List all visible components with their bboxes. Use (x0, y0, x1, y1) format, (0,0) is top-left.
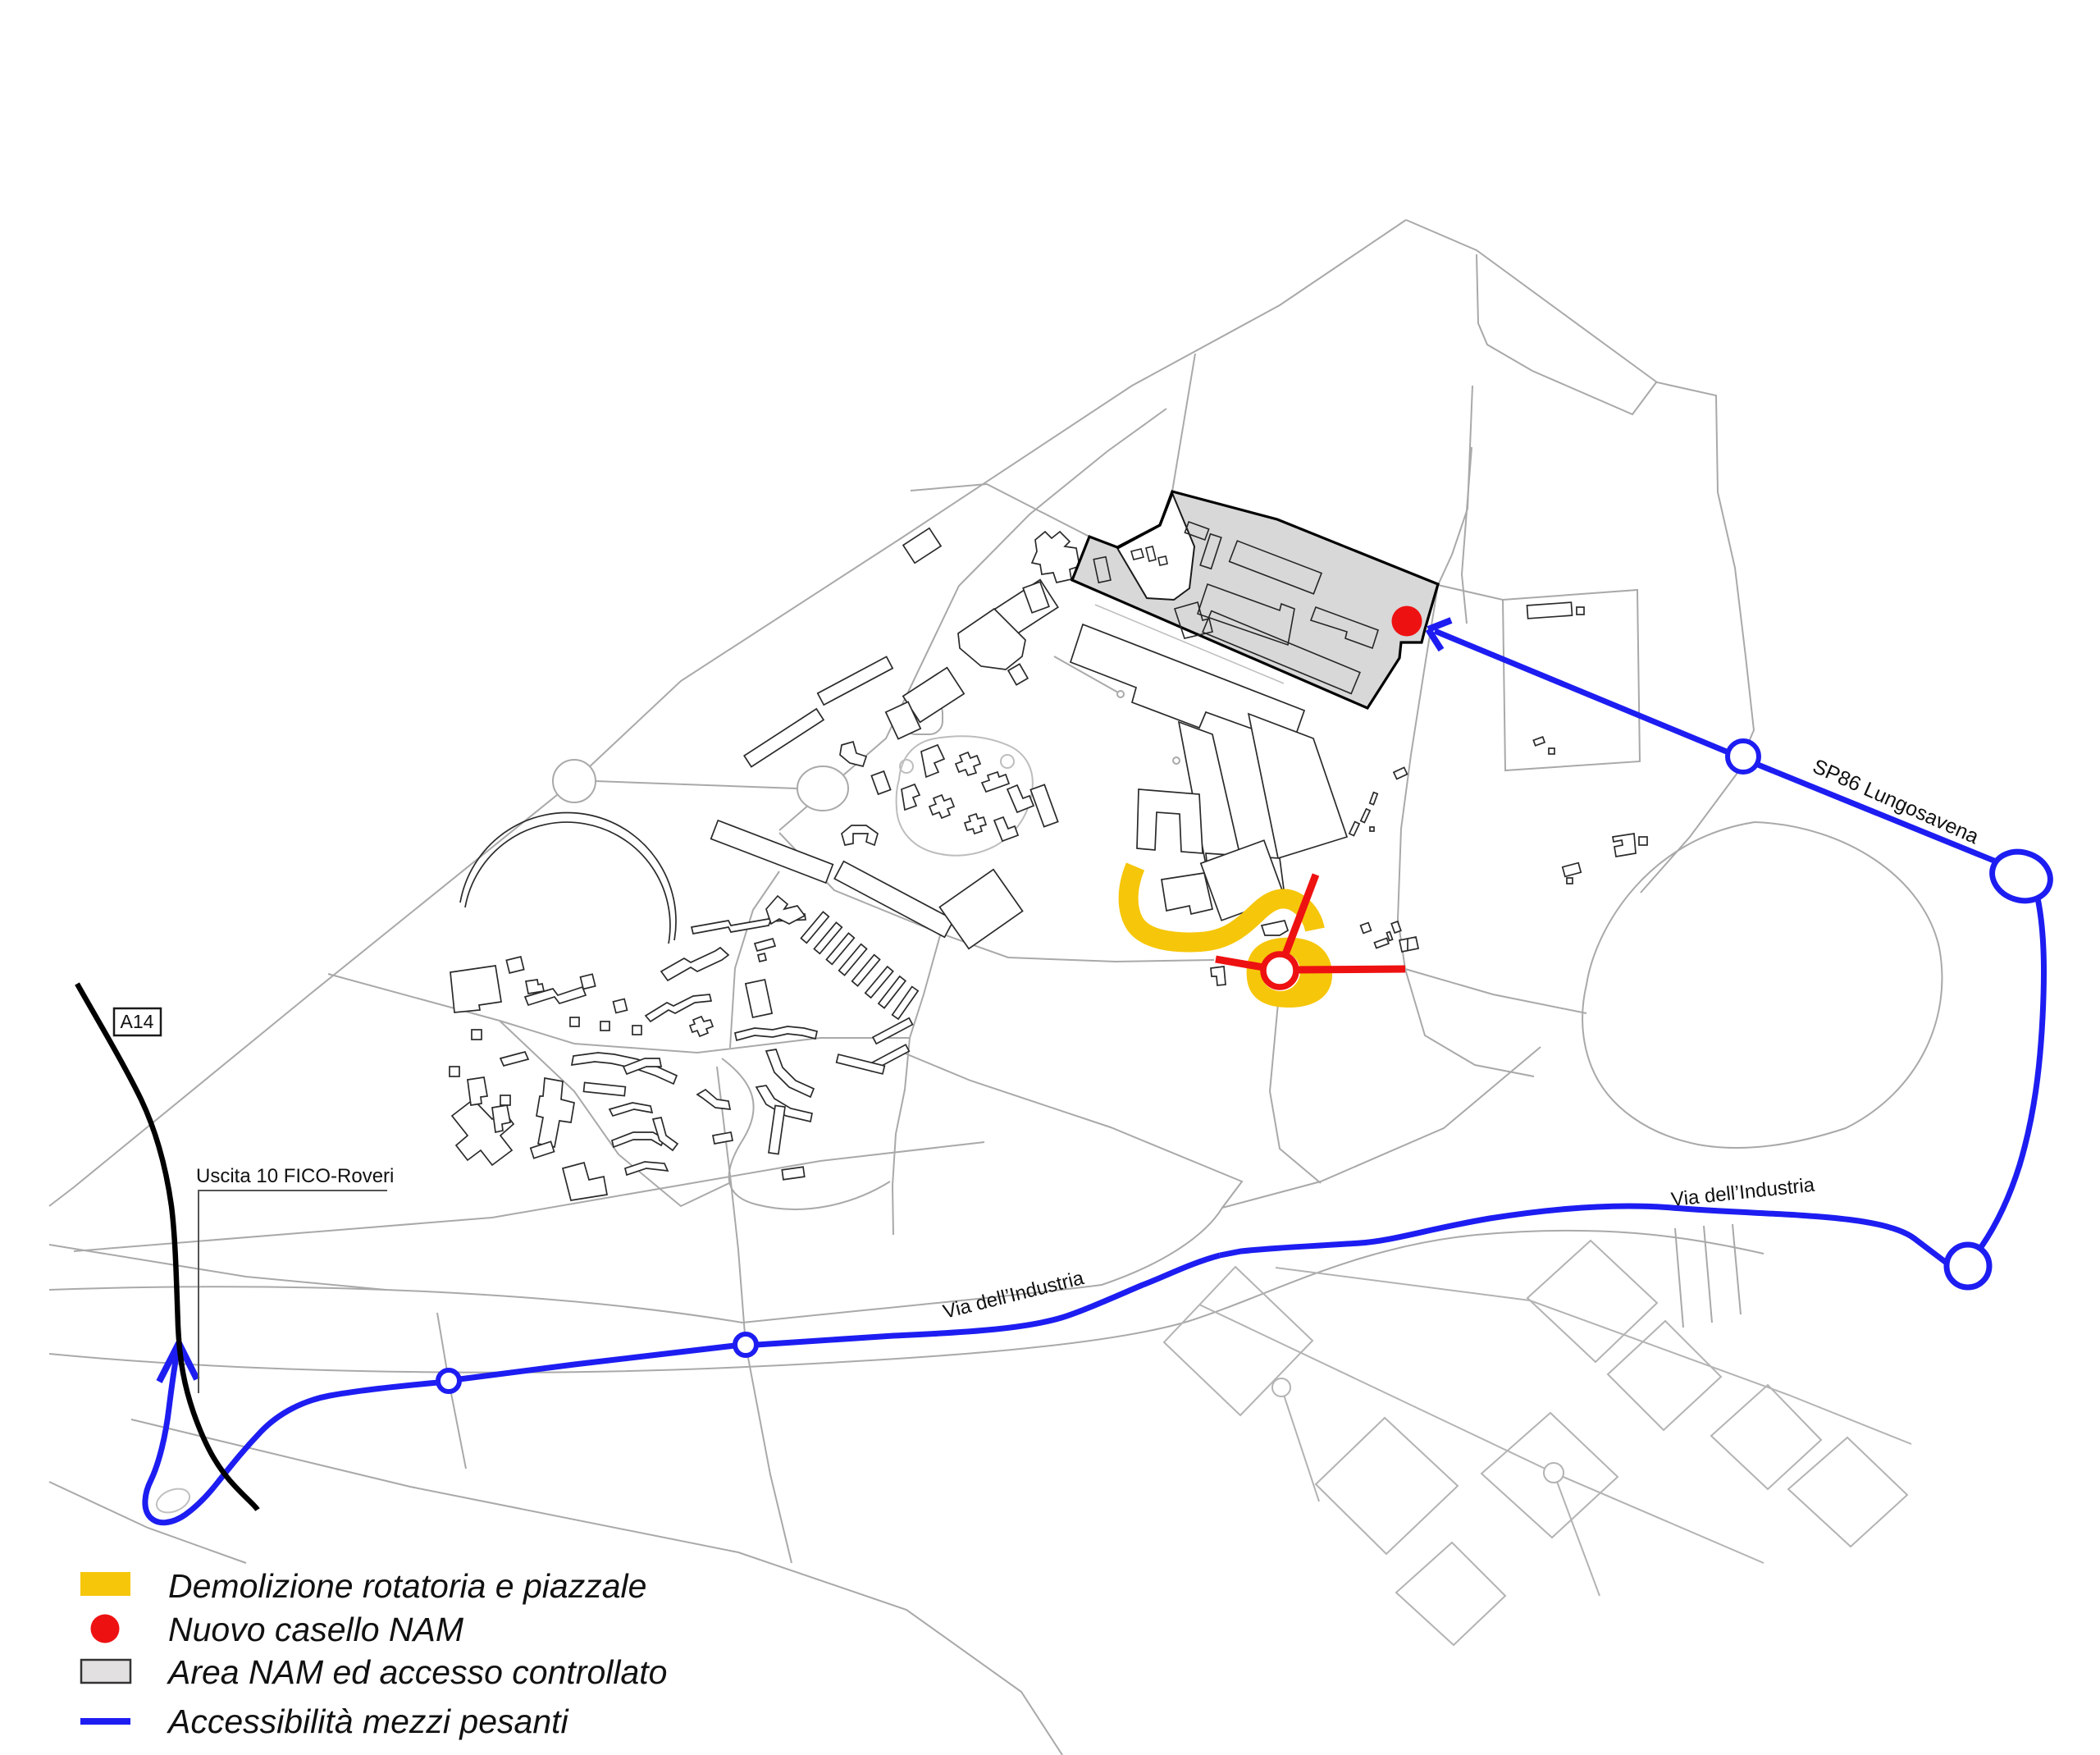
svg-text:Demolizione rotatoria e piazza: Demolizione rotatoria e piazzale (168, 1567, 646, 1605)
svg-text:Uscita 10 FICO-Roveri: Uscita 10 FICO-Roveri (196, 1165, 394, 1187)
svg-text:Area NAM ed accesso controllat: Area NAM ed accesso controllato (166, 1653, 667, 1691)
svg-text:Nuovo casello NAM: Nuovo casello NAM (168, 1611, 464, 1648)
svg-text:Accessibilità mezzi pesanti: Accessibilità mezzi pesanti (166, 1702, 570, 1740)
svg-text:A14: A14 (121, 1011, 154, 1032)
